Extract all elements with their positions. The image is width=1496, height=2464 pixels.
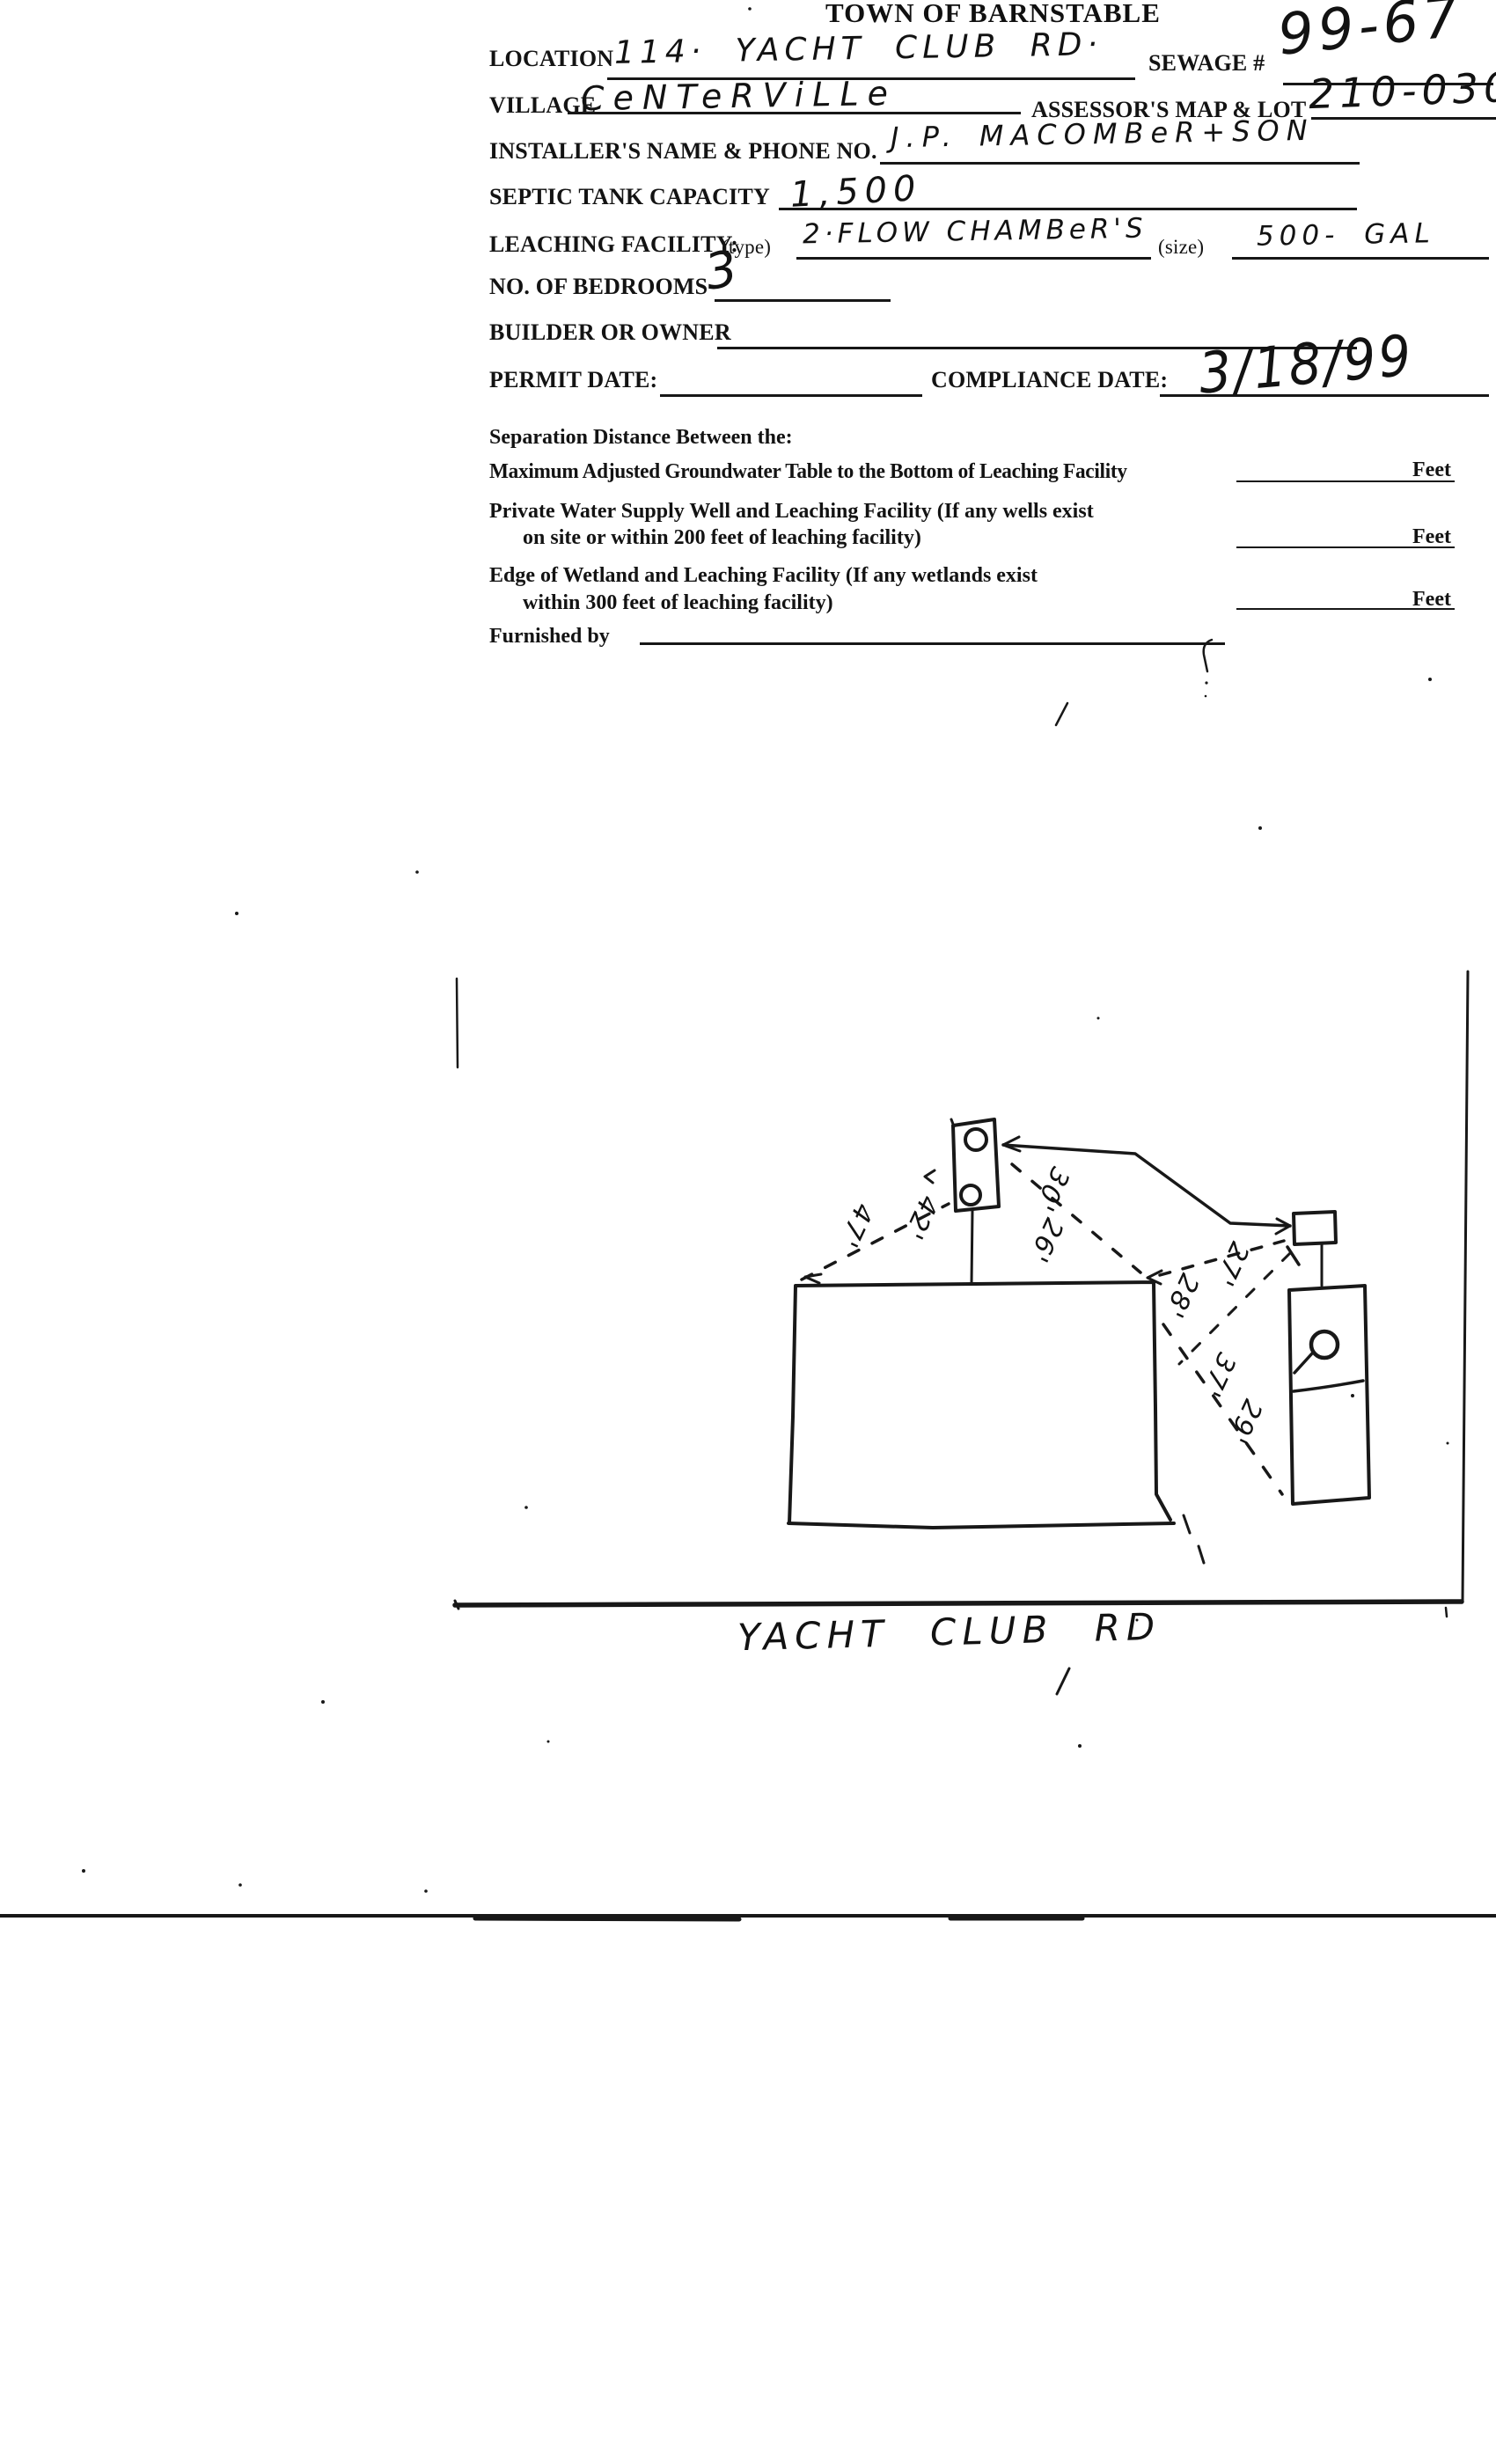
distribution-box bbox=[1294, 1212, 1336, 1244]
stray-slash-upper bbox=[1056, 703, 1067, 725]
road-edge-line bbox=[455, 1602, 1462, 1605]
house-to-tank-pipe bbox=[972, 1211, 972, 1284]
tie-arrow-house-corner bbox=[805, 1274, 821, 1283]
septic-tank-cover-top bbox=[965, 1129, 986, 1150]
stray-slash-below-road bbox=[1057, 1668, 1069, 1694]
scan-specks bbox=[82, 7, 1449, 1893]
house-outline bbox=[788, 1282, 1174, 1528]
stray-dot-2 bbox=[1205, 695, 1207, 698]
leach-chamber-tick bbox=[1294, 1353, 1312, 1373]
leach-chamber-dot bbox=[1351, 1394, 1354, 1397]
road-edge-end-tick bbox=[1446, 1608, 1447, 1617]
boundary-right-line bbox=[1463, 972, 1468, 1602]
page-divider-rule-texture bbox=[475, 1918, 1082, 1919]
stray-dashes bbox=[1184, 1515, 1204, 1563]
road-name-label: YACHT CLUB RD bbox=[737, 1609, 1162, 1657]
septic-tank-cover-bottom bbox=[961, 1185, 980, 1205]
leach-chamber-outline bbox=[1289, 1286, 1369, 1504]
stray-dot-1 bbox=[1205, 681, 1207, 684]
tie-chevron-near-tank bbox=[925, 1170, 935, 1183]
boundary-left-tick bbox=[457, 979, 458, 1067]
site-sketch bbox=[0, 0, 1496, 2464]
stray-hook-mark bbox=[1204, 640, 1212, 671]
leach-chamber-divider bbox=[1294, 1381, 1363, 1391]
scanned-permit-page: TOWN OF BARNSTABLE LOCATION 114· YACHT C… bbox=[0, 0, 1496, 2464]
leach-chamber-cover bbox=[1311, 1331, 1338, 1358]
